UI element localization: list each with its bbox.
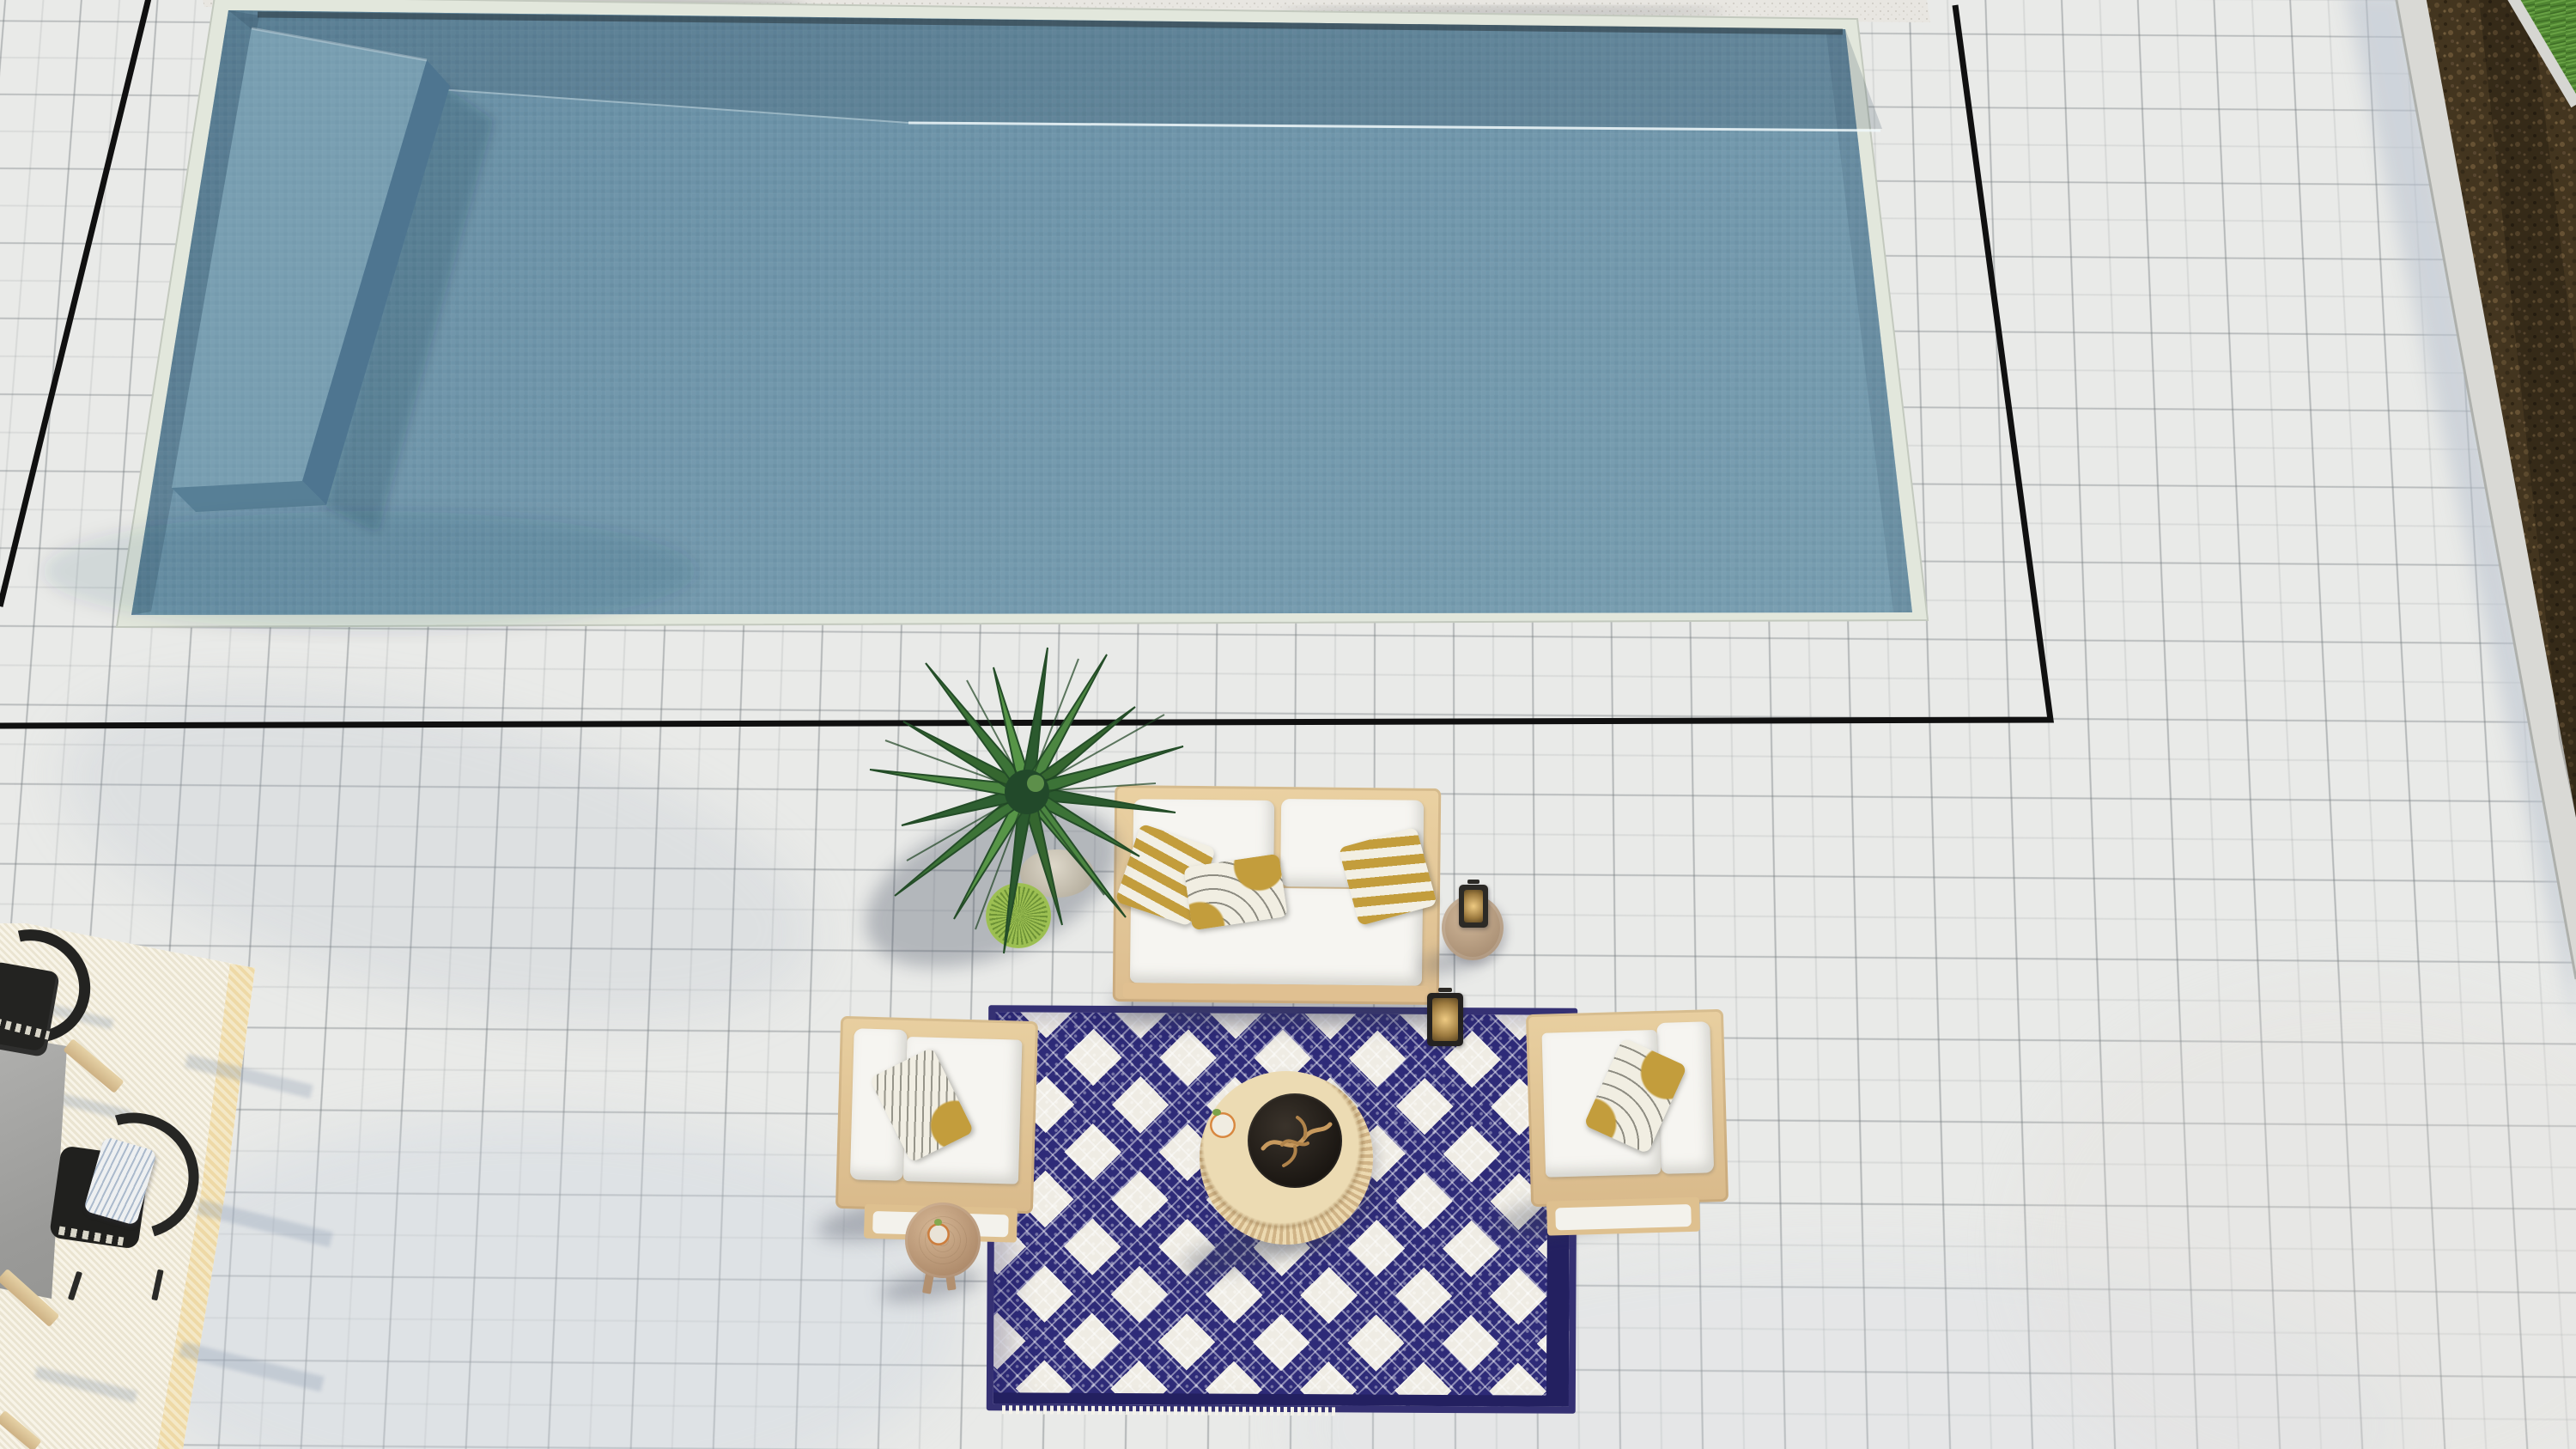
lantern-glass	[1432, 998, 1458, 1041]
dining-chair-top	[0, 932, 103, 1061]
armchair-front-cushion	[1555, 1204, 1692, 1230]
chair-seat	[0, 961, 60, 1057]
dining-chair-middle	[52, 1117, 197, 1263]
candle-lantern-floor	[1427, 993, 1463, 1046]
armchair-right	[1526, 1009, 1728, 1207]
garden-bed	[2344, 0, 2576, 1031]
palm-plant	[847, 612, 1207, 972]
cup-on-stool	[927, 1223, 950, 1245]
coffee-table	[1200, 1071, 1373, 1245]
swimming-pool	[43, 0, 1928, 631]
driftwood-decor	[1248, 1093, 1342, 1188]
candle-lantern	[1459, 885, 1488, 928]
sofa-front-rail	[1123, 983, 1429, 1002]
armchair-left	[835, 1016, 1038, 1214]
poolside-render	[0, 0, 2576, 1449]
black-tray	[1248, 1093, 1342, 1188]
lantern-glass	[1464, 890, 1483, 922]
palm-center	[1005, 770, 1049, 814]
cocktail-glass	[1210, 1112, 1236, 1138]
